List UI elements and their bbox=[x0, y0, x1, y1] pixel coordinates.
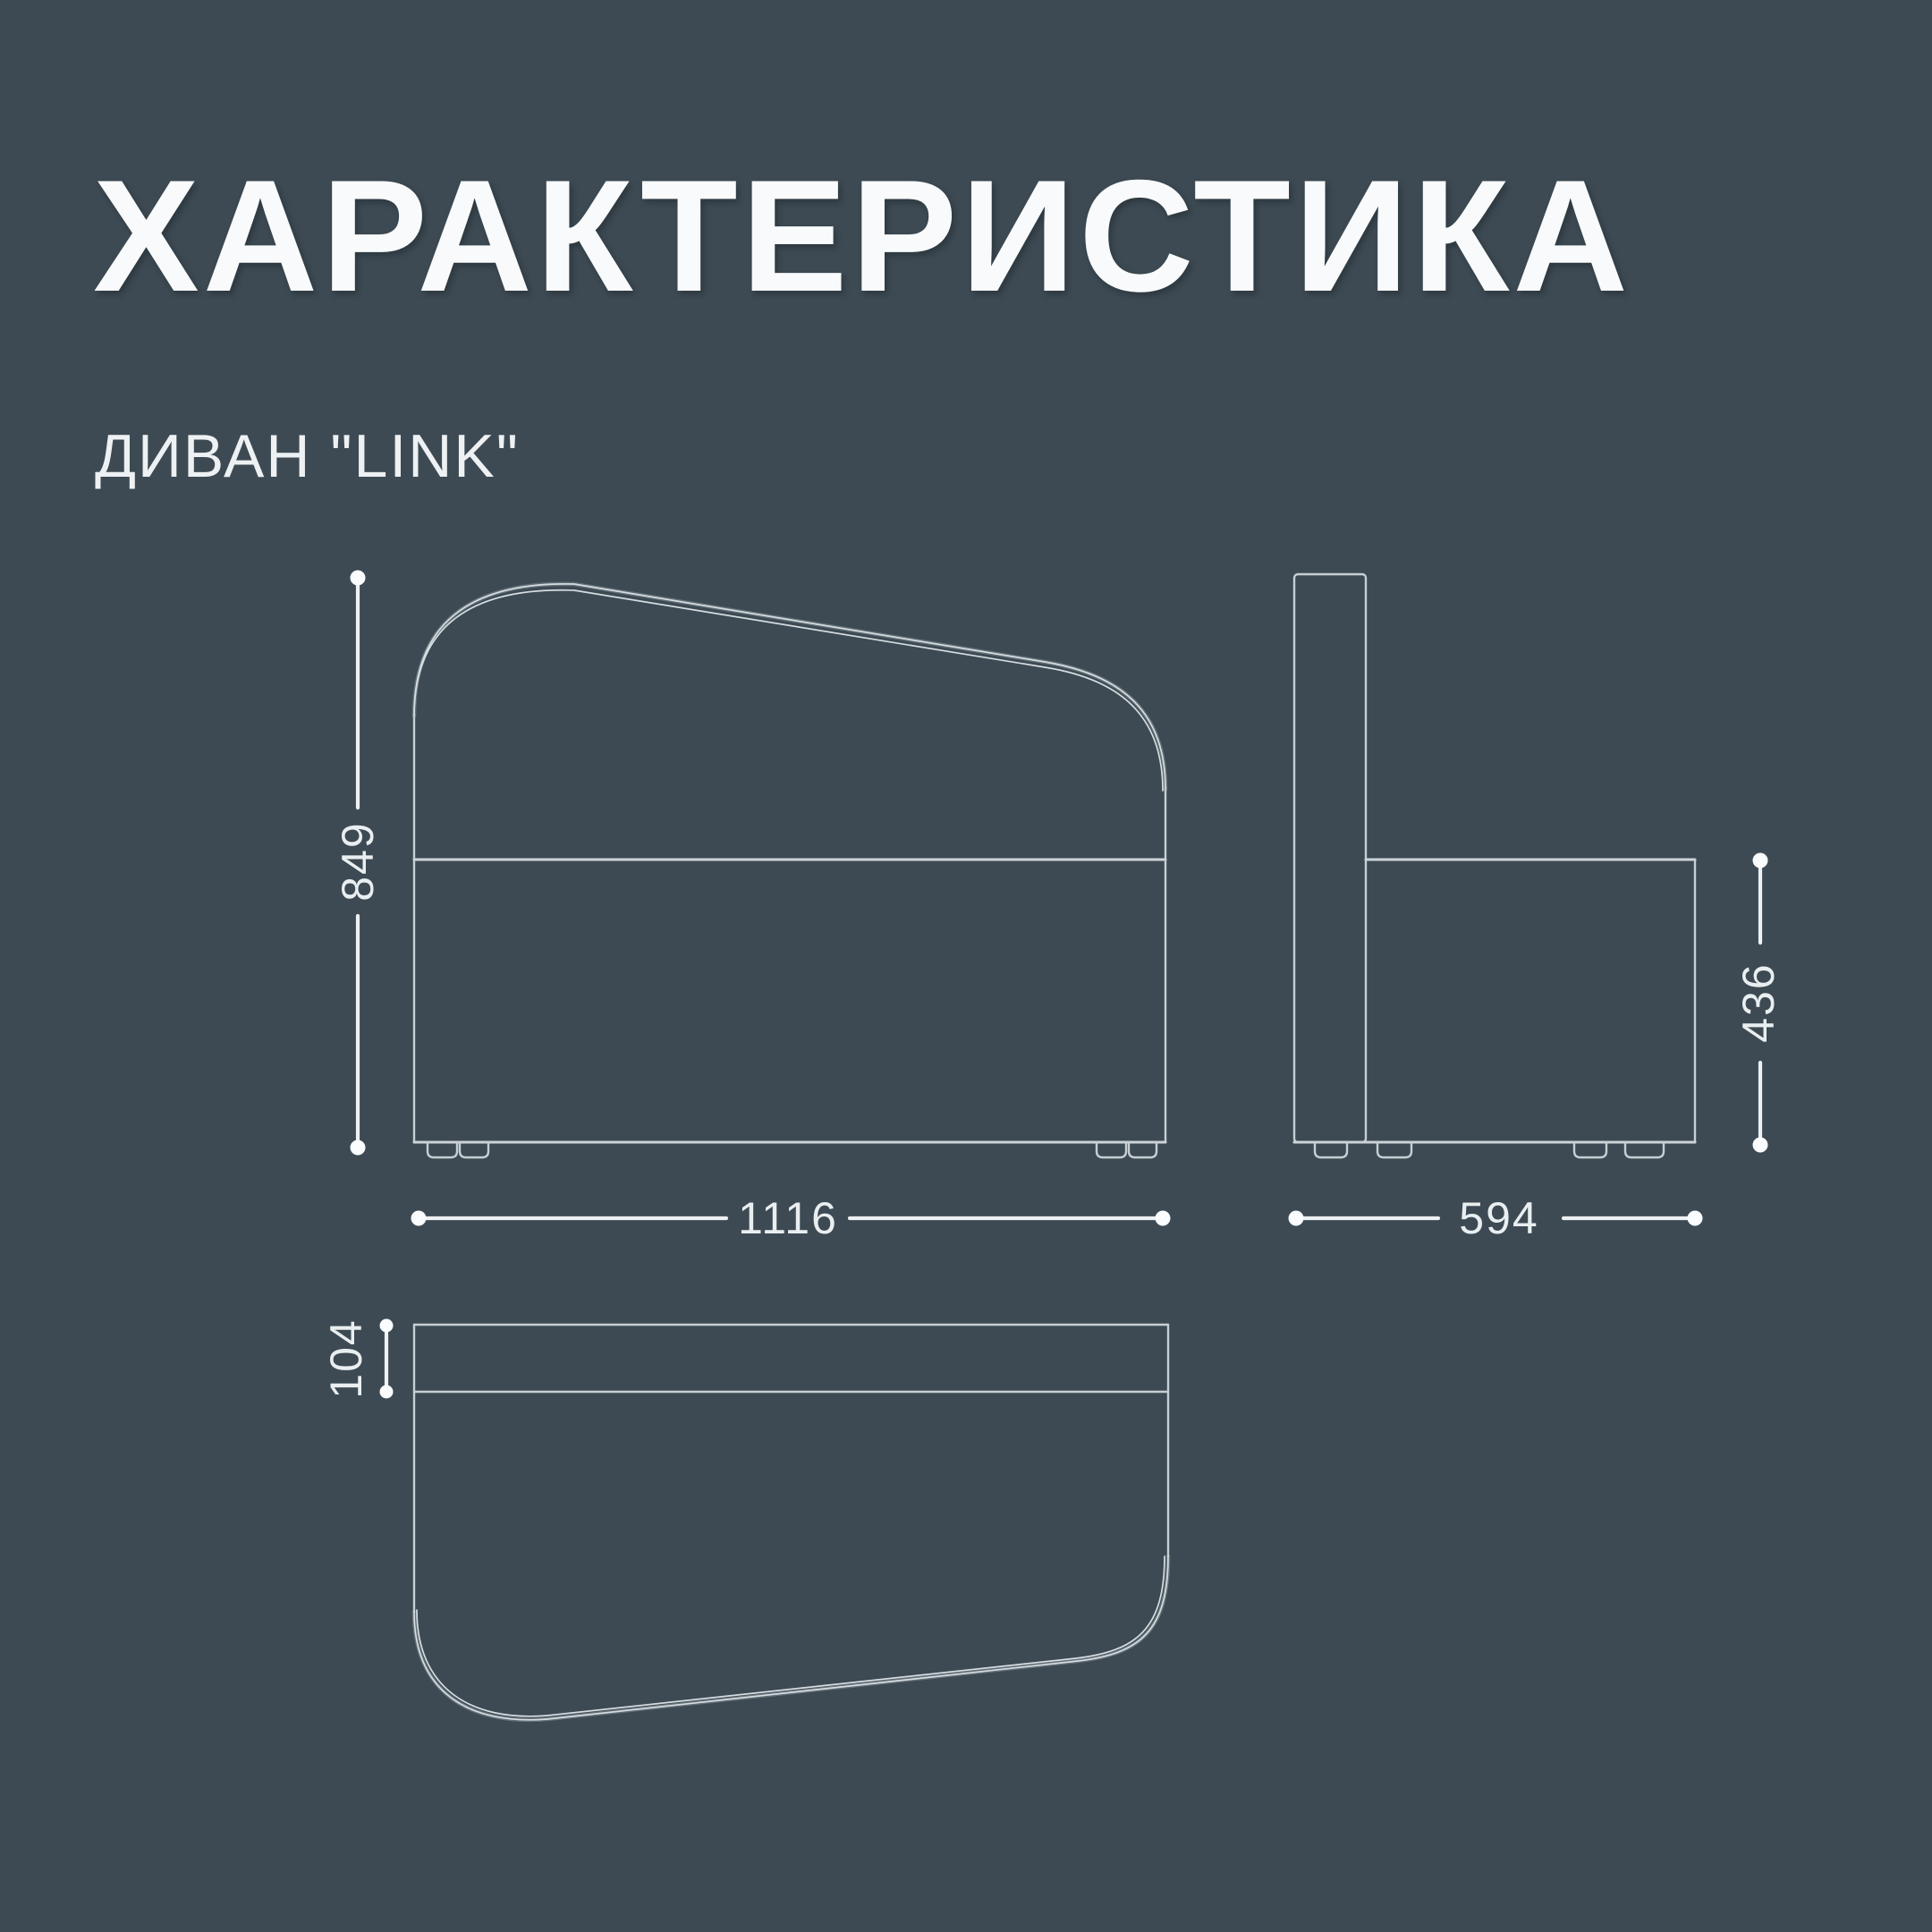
dim-endpoint-dot bbox=[411, 1211, 427, 1226]
dim-endpoint-dot bbox=[1688, 1211, 1703, 1226]
dim-endpoint-dot bbox=[380, 1319, 394, 1333]
dim-endpoint-dot bbox=[1289, 1211, 1304, 1226]
dimension-drawing: 849 1116 594 436 bbox=[0, 0, 1932, 1932]
side-backrest bbox=[1294, 574, 1366, 1142]
dim-width-label: 1116 bbox=[738, 1193, 838, 1243]
dim-depth-label: 594 bbox=[1459, 1193, 1538, 1243]
front-foot bbox=[1097, 1142, 1126, 1157]
dim-endpoint-dot bbox=[1156, 1211, 1171, 1226]
dim-depth: 594 bbox=[1289, 1193, 1703, 1243]
dim-endpoint-dot bbox=[1753, 853, 1768, 869]
side-view bbox=[1294, 574, 1695, 1157]
dim-endpoint-dot bbox=[351, 1140, 366, 1156]
front-view bbox=[414, 584, 1165, 1157]
dim-height-label: 849 bbox=[333, 821, 383, 901]
front-foot bbox=[428, 1142, 457, 1157]
dim-backrest-depth-label: 104 bbox=[321, 1318, 371, 1398]
top-view bbox=[414, 1325, 1168, 1720]
dim-seat-height-label: 436 bbox=[1733, 962, 1784, 1042]
dim-endpoint-dot bbox=[1753, 1138, 1768, 1153]
dim-width: 1116 bbox=[411, 1193, 1171, 1243]
front-foot bbox=[1129, 1142, 1157, 1157]
dim-height: 849 bbox=[333, 571, 383, 1156]
dim-endpoint-dot bbox=[380, 1385, 394, 1399]
front-foot bbox=[460, 1142, 488, 1157]
dim-endpoint-dot bbox=[351, 571, 366, 586]
side-foot bbox=[1625, 1142, 1664, 1157]
side-foot bbox=[1315, 1142, 1347, 1157]
side-foot bbox=[1377, 1142, 1411, 1157]
side-foot bbox=[1574, 1142, 1606, 1157]
front-top-edge bbox=[414, 584, 1165, 789]
spec-page: ХАРАКТЕРИСТИКА ДИВАН "LINK" bbox=[0, 0, 1932, 1932]
top-front-edge bbox=[414, 1556, 1168, 1720]
dim-seat-height: 436 bbox=[1733, 853, 1784, 1153]
dim-backrest-depth: 104 bbox=[321, 1318, 394, 1398]
